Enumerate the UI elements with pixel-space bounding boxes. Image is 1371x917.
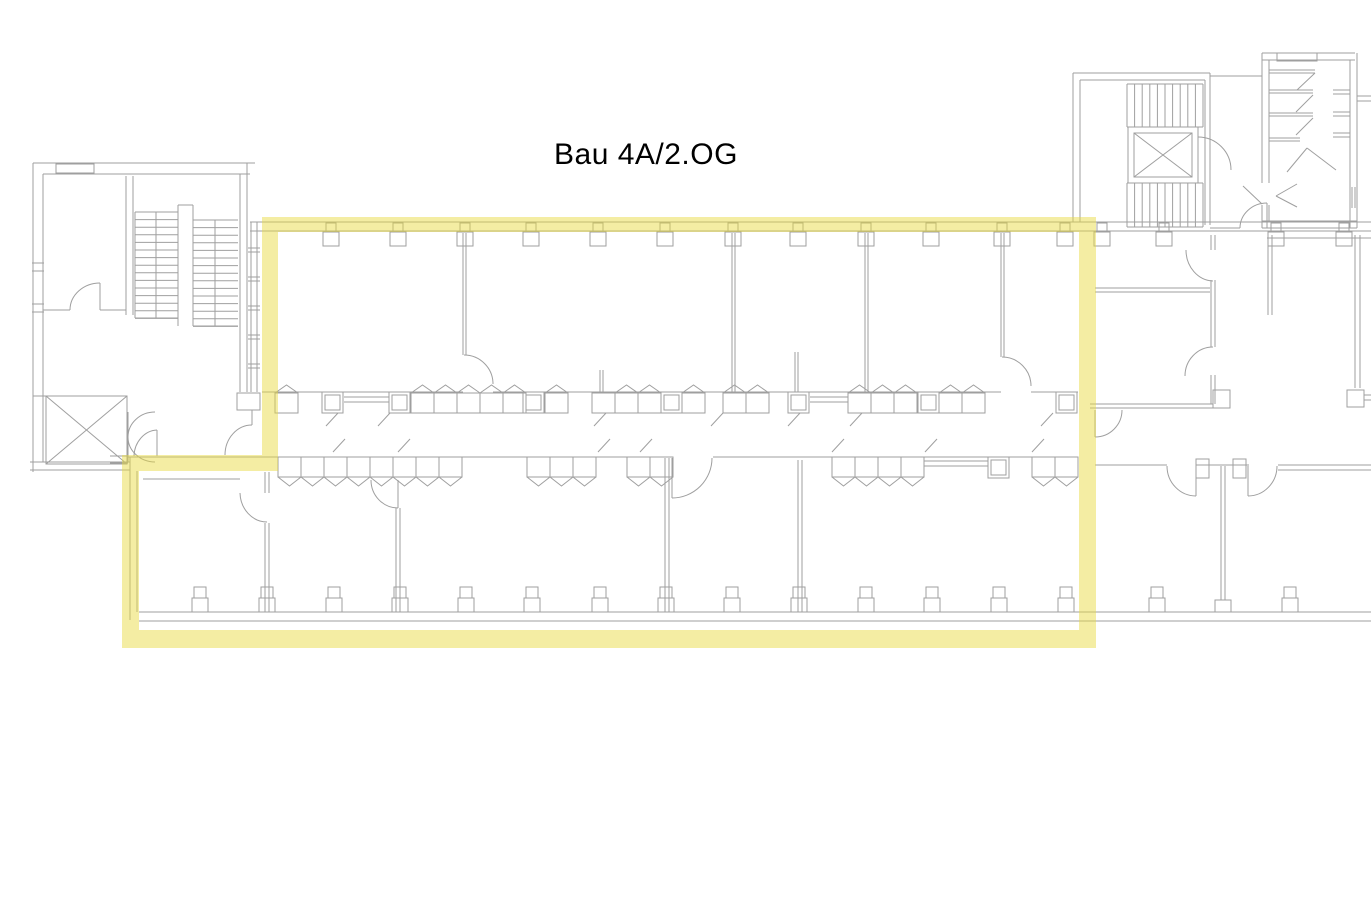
floorplan-page: Bau 4A/2.OG: [0, 0, 1371, 917]
left-stair-block-walls: [30, 163, 260, 472]
right-stair-block: [1073, 73, 1267, 228]
left-stairs: [135, 212, 238, 326]
corridor-lockers: [275, 385, 1078, 486]
structural-columns: [192, 223, 1352, 612]
facade-walls: [130, 222, 1371, 621]
wc-room-block: [1243, 53, 1371, 228]
left-elevator: [33, 396, 155, 464]
upper-room-partitions: [463, 233, 1031, 392]
highlight-outline: [122, 217, 1096, 648]
east-wing-rooms: [1090, 235, 1371, 612]
plan-title: Bau 4A/2.OG: [554, 138, 738, 172]
